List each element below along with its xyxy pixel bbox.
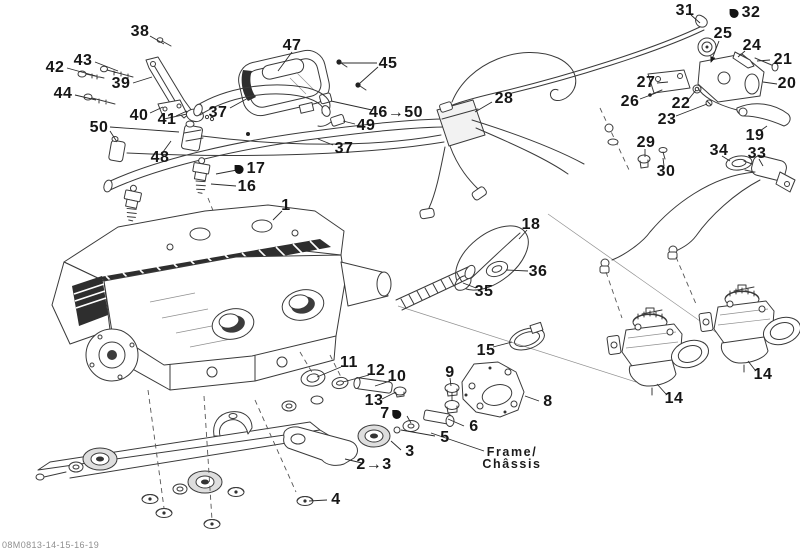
callout-6-45: 6 <box>469 419 478 435</box>
callout-number: 16 <box>238 179 257 195</box>
callout-16-16: 16 <box>238 179 257 195</box>
document-code: 08M0813-14-15-16-19 <box>2 540 99 550</box>
callout-50-13: 50 <box>90 120 109 136</box>
callout-34-31: 34 <box>710 143 729 159</box>
callout-14-51: 14 <box>754 367 773 383</box>
callout-37-12: 37 <box>335 141 354 157</box>
callout-number: 37 <box>335 141 354 157</box>
loctite-droplet-icon <box>393 410 402 419</box>
callout-26-25: 26 <box>621 94 640 110</box>
callout-32-20: 32 <box>730 5 761 21</box>
callout-43-2: 43 <box>74 53 93 69</box>
callout-number: 8 <box>543 394 552 410</box>
callout-number: 14 <box>665 391 684 407</box>
callout-number: 4 <box>331 492 340 508</box>
callout-number: 31 <box>676 3 695 19</box>
callout-3-47: 3 <box>405 444 414 460</box>
callout-number: 36 <box>529 264 548 280</box>
callout-15-37: 15 <box>477 343 496 359</box>
callout-number: 47 <box>283 38 302 54</box>
callout-number: 29 <box>637 135 656 151</box>
callout-layer: 38424344394041474546→5049373750481716128… <box>0 0 800 556</box>
callout-38-0: 38 <box>131 24 150 40</box>
callout-number: 21 <box>774 52 793 68</box>
callout-number: 41 <box>158 112 177 128</box>
callout-1-17: 1 <box>281 198 290 214</box>
callout-17-15: 17 <box>235 161 266 177</box>
callout-20-28: 20 <box>778 76 797 92</box>
callout-number: 27 <box>637 75 656 91</box>
callout-number: 49 <box>357 118 376 134</box>
callout-number: 45 <box>379 56 398 72</box>
callout-number: 20 <box>778 76 797 92</box>
callout-number: 38 <box>131 24 150 40</box>
callout-21-23: 21 <box>774 52 793 68</box>
callout-number: 19 <box>746 128 765 144</box>
callout-8-44: 8 <box>543 394 552 410</box>
callout-number: 9 <box>445 365 454 381</box>
callout-39-4: 39 <box>112 76 131 92</box>
callout-49-10: 49 <box>357 118 376 134</box>
callout-46-50-9: 46→50 <box>369 105 423 121</box>
callout-number: 1 <box>281 198 290 214</box>
callout-18-34: 18 <box>522 217 541 233</box>
callout-number: 35 <box>475 284 494 300</box>
callout-number: 24 <box>743 38 762 54</box>
callout-number: 22 <box>672 96 691 112</box>
callout-5-46: 5 <box>440 430 449 446</box>
callout-11-38: 11 <box>340 355 358 371</box>
callout-number: 46→50 <box>369 105 423 121</box>
callout-25-21: 25 <box>714 26 733 42</box>
callout-number: 3 <box>405 444 414 460</box>
callout-33-32: 33 <box>748 146 767 162</box>
callout-22-26: 22 <box>672 96 691 112</box>
callout-number: 39 <box>112 76 131 92</box>
callout-number: 33 <box>748 146 767 162</box>
callout-number: 44 <box>54 86 73 102</box>
frame-label-line2: Châssis <box>482 458 541 470</box>
frame-chassis-label: Frame/ Châssis <box>482 446 541 470</box>
callout-9-41: 9 <box>445 365 454 381</box>
callout-number: 10 <box>388 369 407 385</box>
callout-47-7: 47 <box>283 38 302 54</box>
callout-number: 2→3 <box>356 457 391 473</box>
callout-41-6: 41 <box>158 112 177 128</box>
callout-29-29: 29 <box>637 135 656 151</box>
callout-number: 23 <box>658 112 677 128</box>
callout-number: 14 <box>754 367 773 383</box>
callout-number: 15 <box>477 343 496 359</box>
callout-number: 25 <box>714 26 733 42</box>
callout-27-24: 27 <box>637 75 656 91</box>
callout-number: 11 <box>340 355 358 371</box>
callout-number: 28 <box>495 91 514 107</box>
loctite-droplet-icon <box>730 9 739 18</box>
callout-number: 6 <box>469 419 478 435</box>
callout-2-3-48: 2→3 <box>356 457 391 473</box>
callout-23-27: 23 <box>658 112 677 128</box>
callout-28-18: 28 <box>495 91 514 107</box>
callout-42-1: 42 <box>46 60 65 76</box>
callout-number: 37 <box>209 105 228 121</box>
callout-number: 42 <box>46 60 65 76</box>
callout-37-11: 37 <box>209 105 228 121</box>
callout-number: 40 <box>130 108 149 124</box>
callout-30-30: 30 <box>657 164 676 180</box>
loctite-droplet-icon <box>235 165 244 174</box>
callout-7-43: 7 <box>380 406 401 422</box>
callout-number: 30 <box>657 164 676 180</box>
callout-number: 26 <box>621 94 640 110</box>
callout-number: 5 <box>440 430 449 446</box>
callout-35-36: 35 <box>475 284 494 300</box>
callout-number: 43 <box>74 53 93 69</box>
callout-number: 7 <box>380 406 389 422</box>
callout-31-19: 31 <box>676 3 695 19</box>
callout-45-8: 45 <box>379 56 398 72</box>
callout-19-33: 19 <box>746 128 765 144</box>
callout-4-49: 4 <box>331 492 340 508</box>
callout-number: 12 <box>367 363 386 379</box>
callout-40-5: 40 <box>130 108 149 124</box>
callout-number: 32 <box>742 5 761 21</box>
callout-10-40: 10 <box>388 369 407 385</box>
callout-number: 34 <box>710 143 729 159</box>
callout-14-50: 14 <box>665 391 684 407</box>
callout-number: 48 <box>151 150 170 166</box>
parts-diagram-page: 38424344394041474546→5049373750481716128… <box>0 0 800 556</box>
callout-48-14: 48 <box>151 150 170 166</box>
callout-24-22: 24 <box>743 38 762 54</box>
callout-12-39: 12 <box>367 363 386 379</box>
callout-44-3: 44 <box>54 86 73 102</box>
callout-number: 50 <box>90 120 109 136</box>
callout-number: 17 <box>247 161 266 177</box>
callout-36-35: 36 <box>529 264 548 280</box>
callout-number: 18 <box>522 217 541 233</box>
